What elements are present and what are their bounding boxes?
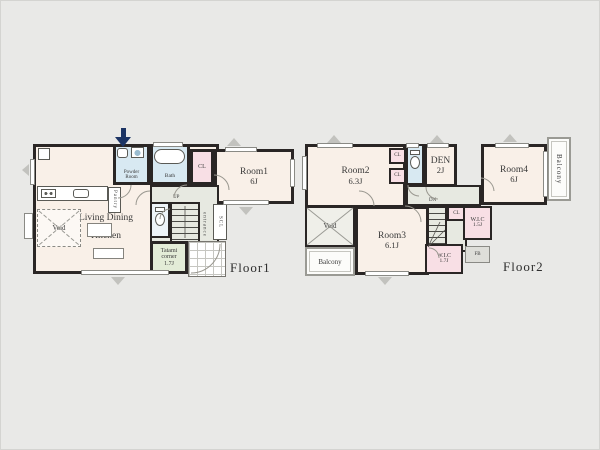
- window-marker-icon: [378, 277, 392, 285]
- basin-icon: [117, 148, 128, 158]
- wic-right: W.I.C 1.5J: [463, 206, 492, 240]
- balcony-right: Balcony: [547, 137, 571, 201]
- flower-box-label: FB: [474, 252, 480, 257]
- window: [302, 156, 307, 190]
- window: [495, 143, 529, 148]
- room3-size: 6.1J: [385, 241, 399, 250]
- pantry-label: Pantry: [112, 190, 117, 209]
- window: [317, 143, 353, 148]
- room2-name: Room2: [342, 166, 370, 176]
- closet-1f-label: CL: [198, 164, 206, 170]
- void-area-1f: Void: [37, 209, 81, 247]
- closet-2f-mid-label: CL: [394, 173, 400, 178]
- room-room1: Room1 6J: [214, 149, 294, 204]
- wic-bottom-size: 1.7J: [439, 259, 448, 265]
- toilet-tank-icon-2f: [410, 150, 420, 155]
- window-marker-icon: [239, 207, 253, 215]
- window-marker-icon: [430, 135, 444, 143]
- shoe-closet-label: SCL: [217, 216, 222, 228]
- void-1f-label: Void: [52, 224, 65, 232]
- room4-size: 6J: [510, 175, 518, 184]
- window: [30, 159, 35, 185]
- sink-icon: [73, 189, 89, 198]
- closet-2f-mid: CL: [389, 168, 406, 184]
- den-size: 2J: [437, 166, 445, 175]
- bath-label: Bath: [165, 174, 175, 180]
- window-marker-icon: [22, 164, 29, 176]
- floor2-caption: Floor2: [503, 260, 544, 274]
- toilet-tank-icon-1f: [155, 207, 165, 212]
- room2-size: 6.3J: [349, 177, 363, 186]
- closet-2f-top-label: CL: [394, 153, 400, 158]
- entry-arrow-icon: [115, 137, 131, 147]
- balcony-right-label: Balcony: [555, 154, 563, 184]
- window: [290, 159, 295, 187]
- void-area-2f: Void: [305, 206, 355, 247]
- tatami-size: 1.7J: [164, 261, 174, 267]
- floor1-caption: Floor1: [230, 261, 271, 275]
- table-icon: [87, 223, 112, 237]
- window-marker-icon: [111, 277, 125, 285]
- entrance-label: entrance: [201, 207, 207, 241]
- room-den: DEN 2J: [424, 144, 457, 187]
- bay-window: [24, 213, 33, 239]
- fridge-icon: [38, 148, 50, 160]
- ldk-name-line1: Living Dining: [79, 213, 133, 223]
- window: [427, 143, 449, 148]
- window: [225, 147, 257, 152]
- stairs-down-label: DN: [429, 198, 436, 204]
- flower-box: FB: [465, 246, 490, 263]
- stairs-up-1f: [170, 202, 200, 243]
- bathtub-icon: [154, 149, 185, 164]
- window-marker-icon: [227, 138, 241, 146]
- window: [365, 271, 409, 276]
- room1-size: 6J: [250, 177, 258, 186]
- hallway-2f: [406, 185, 481, 206]
- closet-1f: CL: [190, 149, 214, 185]
- balcony-door-window: [543, 151, 548, 197]
- window: [406, 143, 419, 148]
- toilet-bowl-icon-2f: [410, 156, 420, 169]
- shoe-closet: SCL: [213, 204, 227, 240]
- window: [81, 270, 169, 275]
- sofa-icon: [93, 248, 124, 259]
- wic-bottom: W.I.C 1.7J: [425, 244, 463, 274]
- floorplan-canvas: Living Dining Kitchen 16.5J Void Powder …: [0, 0, 600, 450]
- void-2f-label: Void: [323, 223, 336, 231]
- room-room4: Room4 6J: [481, 144, 547, 205]
- balcony-left-label: Balcony: [318, 258, 341, 266]
- closet-2f-stairs-label: CL: [453, 211, 459, 216]
- balcony-left: Balcony: [305, 247, 355, 276]
- closet-2f-top: CL: [389, 148, 406, 164]
- entrance-porch: [188, 241, 226, 277]
- window-marker-icon: [327, 135, 341, 143]
- powder-label-line2: Room: [125, 175, 137, 180]
- washer-icon: [131, 147, 144, 158]
- window-marker-icon: [503, 134, 517, 142]
- window: [153, 142, 183, 147]
- stove-icon: [41, 189, 56, 198]
- toilet-bowl-icon-1f: [155, 213, 165, 226]
- window: [223, 200, 269, 205]
- pantry-box: Pantry: [108, 187, 121, 213]
- room-room3: Room3 6.1J: [355, 206, 429, 275]
- stairs-up-label: UP: [173, 195, 179, 201]
- wic-right-size: 1.5J: [473, 223, 482, 229]
